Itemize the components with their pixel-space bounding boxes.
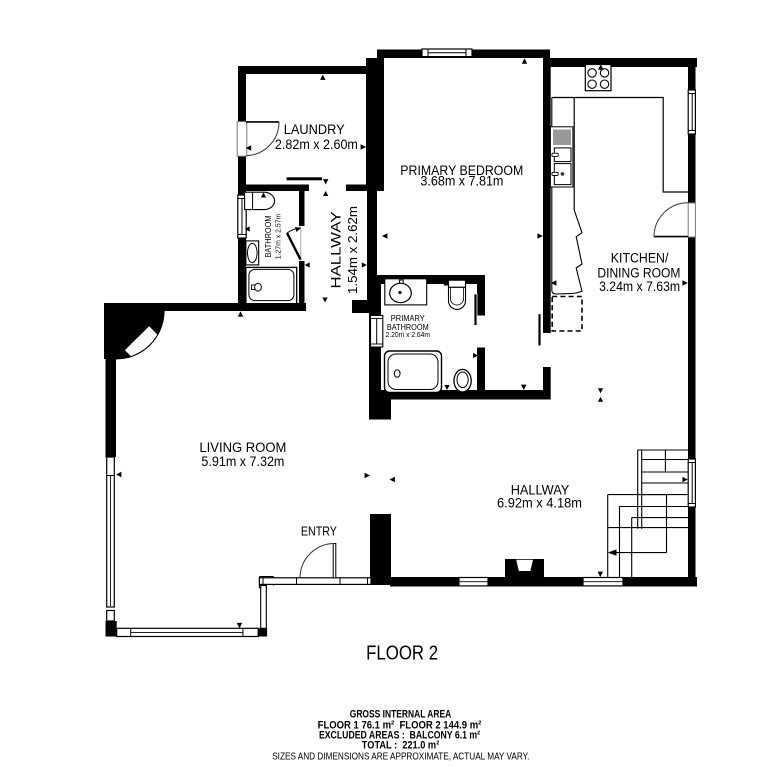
svg-text:3.68m x 7.81m: 3.68m x 7.81m	[420, 174, 503, 189]
svg-text:HALLWAY: HALLWAY	[328, 211, 344, 289]
svg-text:LIVING ROOM: LIVING ROOM	[199, 440, 286, 455]
svg-text:2.82m x 2.60m: 2.82m x 2.60m	[275, 137, 358, 152]
svg-text:ENTRY: ENTRY	[301, 525, 338, 539]
svg-text:1.27m x 2.57m: 1.27m x 2.57m	[274, 214, 283, 260]
svg-text:LAUNDRY: LAUNDRY	[284, 122, 345, 137]
svg-text:6.92m x 4.18m: 6.92m x 4.18m	[497, 496, 582, 511]
svg-text:TOTAL : 221.0 m²: TOTAL : 221.0 m²	[362, 739, 440, 751]
svg-text:2.20m x 2.64m: 2.20m x 2.64m	[386, 330, 430, 339]
svg-text:BATHROOM: BATHROOM	[264, 215, 273, 257]
svg-text:1.54m x 2.62m: 1.54m x 2.62m	[345, 206, 360, 294]
svg-text:KITCHEN/: KITCHEN/	[611, 251, 669, 266]
svg-text:3.24m x 7.63m: 3.24m x 7.63m	[599, 279, 680, 294]
svg-text:SIZES AND DIMENSIONS ARE APPRO: SIZES AND DIMENSIONS ARE APPROXIMATE, AC…	[272, 751, 529, 762]
svg-text:5.91m x 7.32m: 5.91m x 7.32m	[201, 454, 284, 469]
svg-text:FLOOR 2: FLOOR 2	[366, 643, 438, 665]
